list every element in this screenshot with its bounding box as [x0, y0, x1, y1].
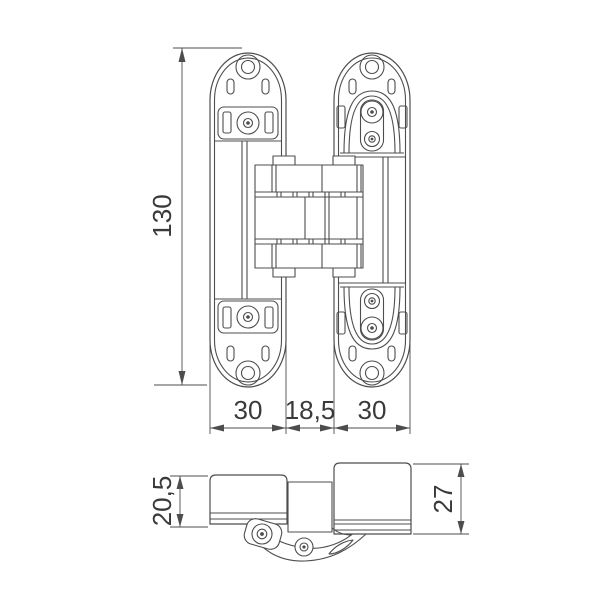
knuckle-tab: [333, 156, 355, 165]
front-view: 130 30 18,5 30: [147, 48, 410, 434]
left-leaf-section: [210, 475, 287, 524]
knuckle-tab: [273, 156, 295, 165]
arrowhead-icon: [458, 521, 465, 534]
hinge-technical-drawing-page: 130 30 18,5 30: [0, 0, 600, 600]
left-bottom-adjuster-bracket: [218, 301, 278, 333]
left-block-outline: [210, 475, 287, 524]
arrowhead-icon: [286, 425, 300, 432]
right-width-dimension-label: 30: [358, 395, 387, 425]
knuckle-body: [255, 165, 363, 268]
gap-width-dimension-label: 18,5: [285, 395, 336, 425]
left-depth-dimension-label: 20,5: [147, 476, 177, 527]
arrowhead-icon: [177, 476, 184, 489]
arrowhead-icon: [179, 48, 186, 62]
left-width-dimension-label: 30: [234, 395, 263, 425]
center-body: [288, 482, 332, 532]
hinge-technical-drawing: 130 30 18,5 30: [0, 0, 600, 600]
arrowhead-icon: [320, 425, 334, 432]
knuckle-tab: [273, 268, 295, 277]
dimension-depth-right: 27: [413, 464, 469, 534]
arrowhead-icon: [179, 371, 186, 385]
arrowhead-icon: [396, 425, 410, 432]
dimension-depth-left: 20,5: [147, 476, 208, 527]
knuckle-tab: [333, 268, 355, 277]
arrowhead-icon: [210, 425, 224, 432]
arrowhead-icon: [334, 425, 348, 432]
right-leaf-section: [334, 463, 411, 534]
height-dimension-label: 130: [147, 194, 177, 237]
arrowhead-icon: [177, 514, 184, 527]
right-block-outline: [334, 463, 411, 534]
hinge-knuckle-block: [255, 156, 363, 277]
right-depth-dimension-label: 27: [428, 485, 458, 514]
left-top-adjuster-bracket: [218, 107, 278, 139]
bottom-view: 20,5 27: [147, 463, 469, 561]
arrowhead-icon: [458, 464, 465, 477]
arrowhead-icon: [272, 425, 286, 432]
